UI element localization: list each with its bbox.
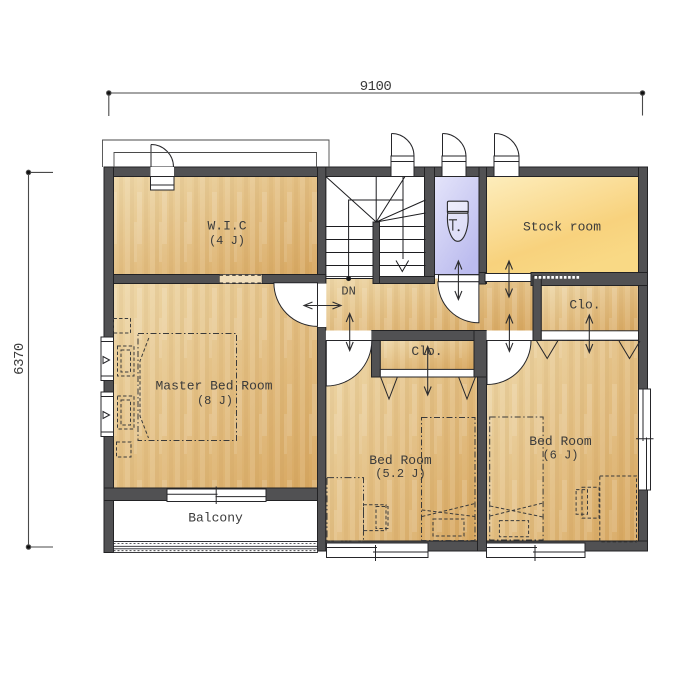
svg-text:(5.2 J): (5.2 J) (375, 467, 425, 481)
svg-text:9100: 9100 (360, 79, 392, 95)
svg-text:Bed Room: Bed Room (529, 434, 592, 449)
svg-text:6370: 6370 (12, 343, 28, 375)
svg-text:Master Bed Room: Master Bed Room (155, 379, 272, 394)
svg-text:(6 J): (6 J) (542, 449, 578, 463)
svg-text:Balcony: Balcony (188, 511, 243, 526)
svg-text:(8 J): (8 J) (197, 394, 233, 408)
svg-text:W.I.C: W.I.C (207, 219, 246, 234)
svg-text:Clo.: Clo. (411, 344, 442, 359)
svg-text:DN: DN (341, 284, 355, 298)
svg-text:Stock room: Stock room (523, 220, 601, 235)
svg-text:Bed Room: Bed Room (369, 453, 432, 468)
svg-text:(4 J): (4 J) (209, 234, 245, 248)
svg-text:Clo.: Clo. (569, 298, 600, 313)
